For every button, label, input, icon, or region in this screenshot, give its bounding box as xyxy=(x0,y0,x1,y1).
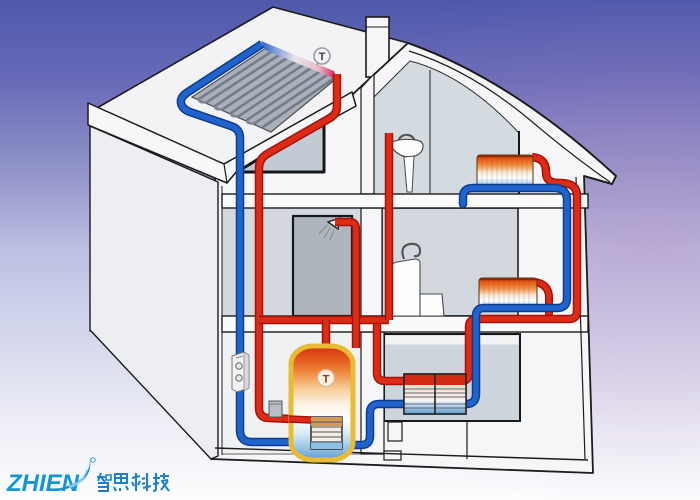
svg-text:T: T xyxy=(319,51,326,63)
svg-text:T: T xyxy=(323,374,330,386)
svg-text:ZHIEN: ZHIEN xyxy=(6,470,80,497)
